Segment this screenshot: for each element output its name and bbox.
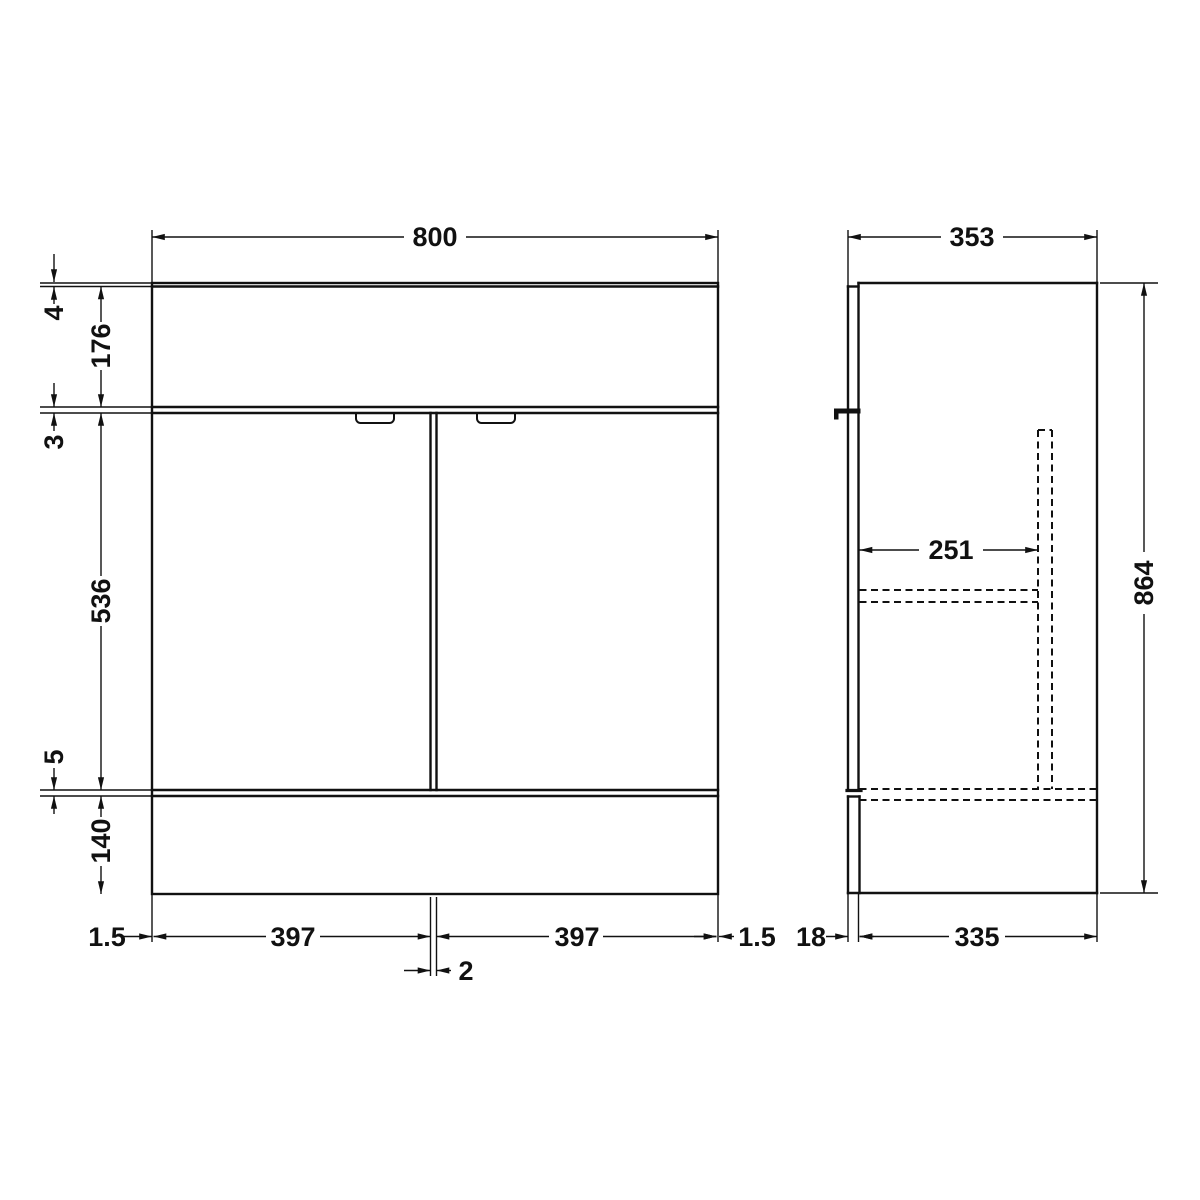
- front-view-outline: [152, 283, 718, 894]
- dim-carcass-depth: 335: [860, 922, 1098, 952]
- dim-overall-height: 864: [1129, 283, 1159, 893]
- dim-gap-below-basin: 3: [39, 383, 69, 450]
- door-handle-notch-left: [356, 414, 394, 423]
- vanity-technical-drawing: 800 4 176 3 536 5: [0, 0, 1200, 1200]
- front-view: [40, 230, 718, 976]
- drawing-page: 800 4 176 3 536 5: [0, 0, 1200, 1200]
- dim-basin-section: 176: [86, 287, 116, 408]
- dim-gap-above-plinth: 5: [39, 749, 69, 814]
- dim-label-door-height: 536: [86, 578, 116, 623]
- dim-label-plinth-height: 140: [86, 818, 116, 863]
- dim-inset-left: 1.5: [88, 922, 152, 952]
- dim-door-height: 536: [86, 413, 116, 790]
- dim-label-side-depth: 353: [949, 222, 994, 252]
- dim-top-lip: 4: [39, 254, 69, 321]
- dim-label-gap-above-plinth: 5: [39, 749, 69, 764]
- dim-label-overall-height: 864: [1129, 560, 1159, 605]
- side-view: [834, 230, 1158, 942]
- dim-label-inset-right: 1.5: [738, 922, 776, 952]
- dim-label-front-width: 800: [412, 222, 457, 252]
- dim-label-front-panel-thickness: 18: [796, 922, 826, 952]
- front-view-extension-lines: [40, 230, 718, 976]
- dim-label-basin-section: 176: [86, 323, 116, 368]
- dim-label-door-gap: 2: [458, 956, 473, 986]
- dim-door-width-left: 397: [154, 922, 431, 952]
- side-handle-hook: [834, 413, 839, 420]
- side-view-outline: [834, 283, 1097, 893]
- side-view-hidden-lines: [860, 430, 1098, 800]
- dim-side-depth: 353: [848, 222, 1097, 252]
- dim-door-width-right: 397: [437, 922, 717, 952]
- dimensions: 800 4 176 3 536 5: [39, 222, 1159, 986]
- dim-label-internal-recess: 251: [928, 535, 973, 565]
- door-handle-notch-right: [477, 414, 515, 423]
- dim-label-top-lip: 4: [39, 305, 69, 320]
- dim-label-inset-left: 1.5: [88, 922, 126, 952]
- front-cabinet-outline: [152, 283, 718, 894]
- dim-label-door-width-right: 397: [554, 922, 599, 952]
- side-view-extension-lines: [848, 230, 1158, 942]
- dim-front-width: 800: [152, 222, 718, 252]
- dim-label-door-width-left: 397: [270, 922, 315, 952]
- dim-door-gap: 2: [404, 956, 474, 986]
- dim-label-gap-below-basin: 3: [39, 434, 69, 449]
- dim-inset-right: 1.5: [694, 922, 776, 952]
- dim-plinth-height: 140: [86, 796, 116, 894]
- dim-internal-recess: 251: [860, 535, 1039, 565]
- dim-label-carcass-depth: 335: [954, 922, 999, 952]
